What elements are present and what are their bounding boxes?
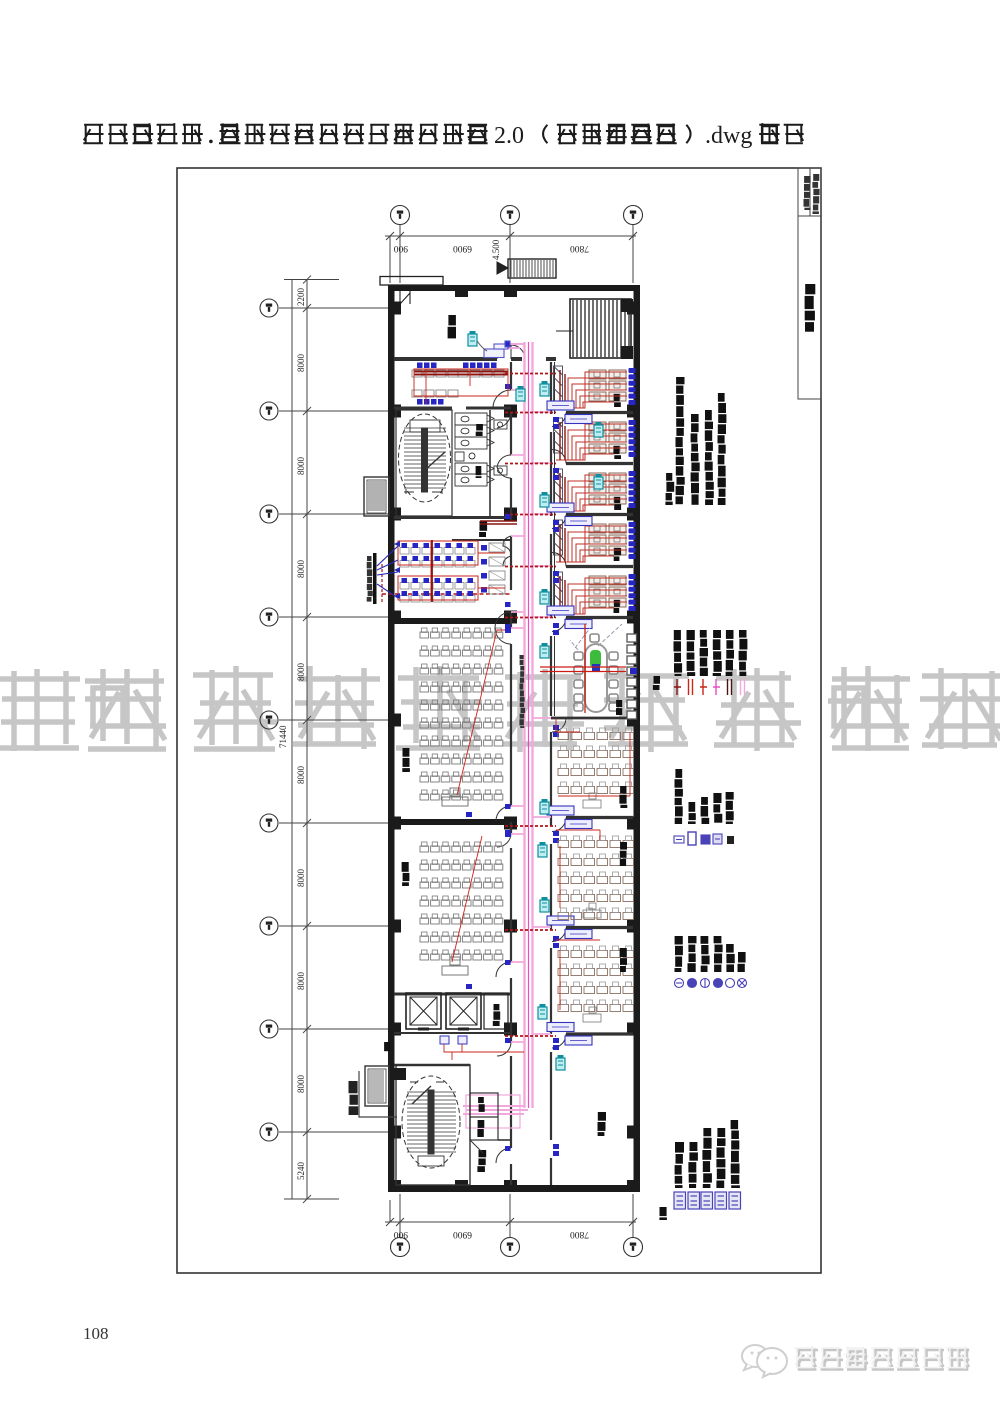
svg-text:8000: 8000 — [296, 869, 306, 888]
svg-text:71440: 71440 — [278, 725, 288, 748]
svg-text:4.500: 4.500 — [491, 239, 501, 260]
svg-text:8000: 8000 — [296, 354, 306, 373]
svg-text:8000: 8000 — [296, 663, 306, 682]
svg-text:900: 900 — [394, 243, 409, 253]
svg-text:5240: 5240 — [296, 1162, 306, 1181]
svg-text:900: 900 — [394, 1229, 409, 1239]
svg-text:2200: 2200 — [296, 288, 306, 307]
svg-text:6900: 6900 — [453, 243, 472, 253]
svg-text:8000: 8000 — [296, 1075, 306, 1094]
svg-text:8000: 8000 — [296, 457, 306, 476]
svg-text:.dwg: .dwg — [705, 123, 752, 149]
svg-text:7800: 7800 — [570, 1229, 589, 1239]
svg-text:7800: 7800 — [570, 243, 589, 253]
svg-text:2.0: 2.0 — [494, 123, 524, 149]
svg-text:8000: 8000 — [296, 972, 306, 991]
svg-text:8000: 8000 — [296, 766, 306, 785]
svg-text:108: 108 — [83, 1324, 109, 1343]
svg-text:8000: 8000 — [296, 560, 306, 579]
svg-text:6900: 6900 — [453, 1229, 472, 1239]
